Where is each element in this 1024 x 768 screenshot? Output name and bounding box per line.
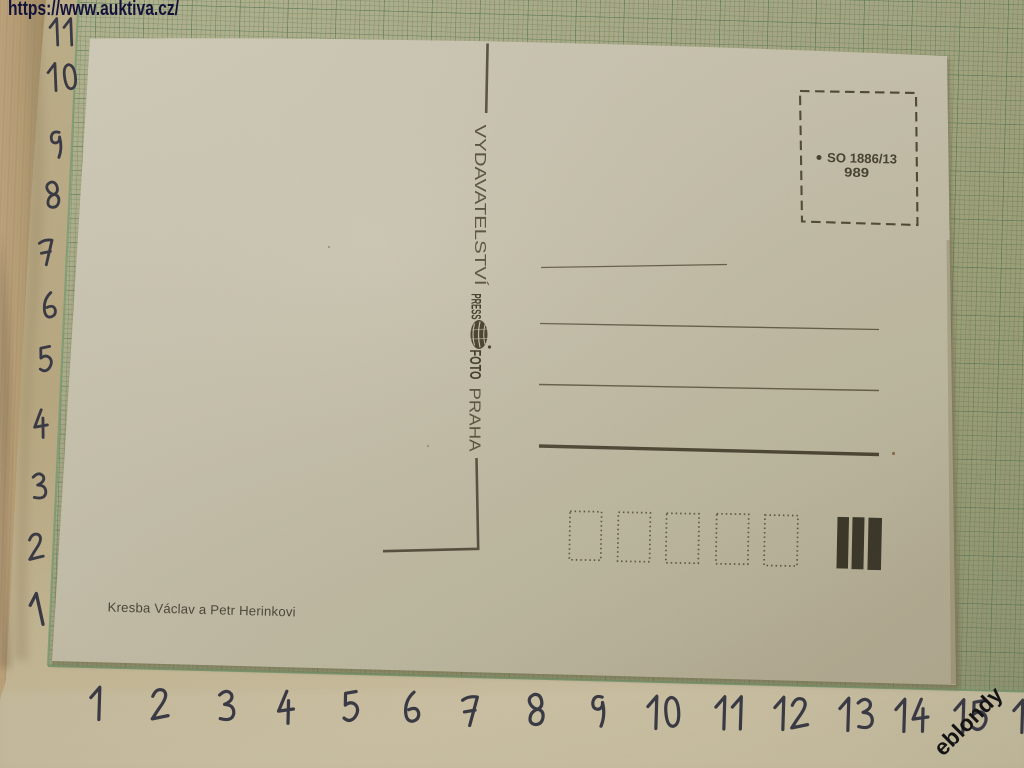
svg-text:https://www.auktiva.cz/: https://www.auktiva.cz/ <box>8 0 179 20</box>
